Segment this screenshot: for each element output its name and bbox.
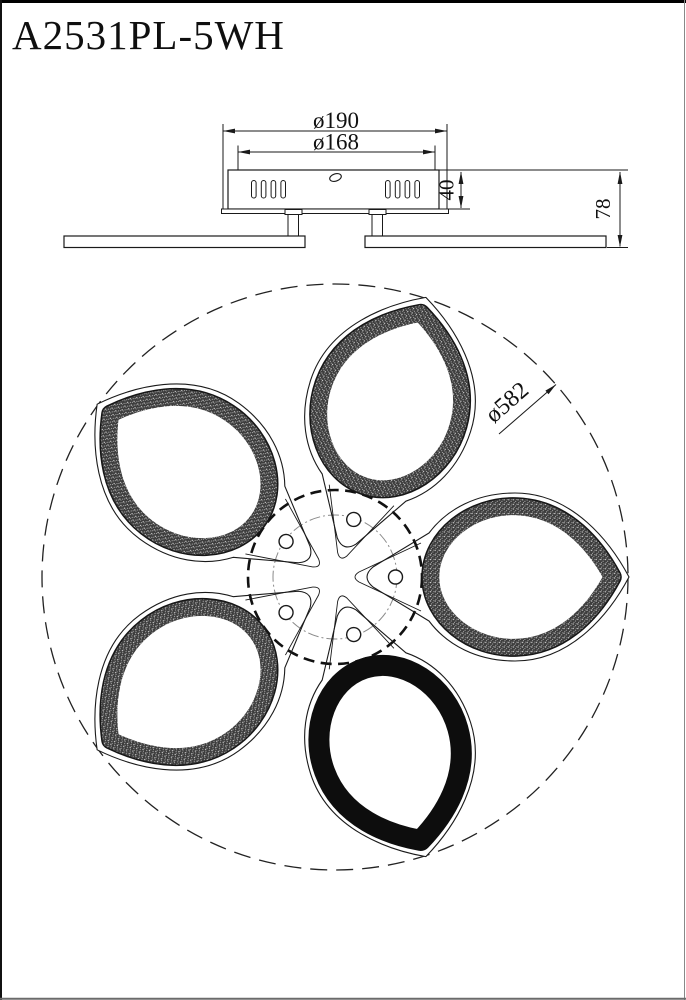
mounting-plate (222, 209, 449, 214)
technical-drawing: A2531PL-5WH ø190 ø168 (0, 0, 686, 1000)
petal-right (431, 507, 612, 647)
petal-bands (70, 292, 612, 862)
dim-label-40: 40 (435, 180, 459, 201)
stem-cap-left (285, 210, 302, 215)
arms (64, 210, 606, 248)
plan-view: ø582 (42, 271, 629, 882)
dim-label-582: ø582 (481, 377, 534, 428)
stem-left (288, 215, 299, 237)
page-title: A2531PL-5WH (12, 12, 285, 58)
stem-cap-right (369, 210, 386, 215)
screw-hole-right (389, 570, 403, 584)
panel-right (365, 236, 606, 248)
panel-left (64, 236, 305, 248)
canopy (222, 170, 449, 214)
dimension-overall-diameter: ø582 (481, 377, 556, 434)
side-view: ø190 ø168 (64, 108, 628, 248)
dimension-inner-diameter: ø168 (238, 130, 435, 155)
dim-label-168: ø168 (313, 130, 359, 155)
dim-label-78: 78 (591, 199, 615, 220)
stem-right (372, 215, 383, 237)
